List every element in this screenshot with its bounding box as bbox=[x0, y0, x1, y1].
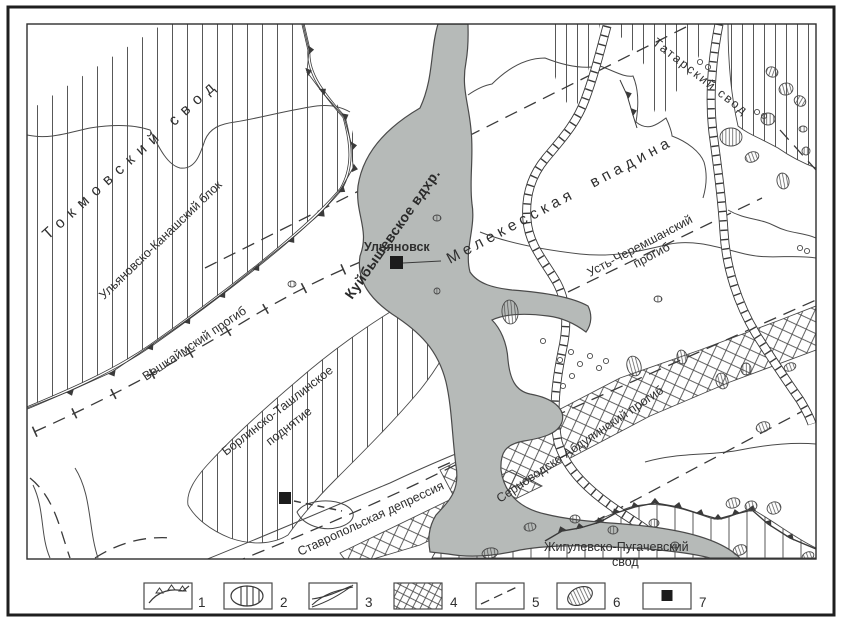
legend-number-3: 3 bbox=[365, 595, 373, 610]
label-ulyanovsk-city: Ульяновск bbox=[364, 240, 430, 254]
legend: 1 2 3 4 bbox=[144, 583, 707, 610]
legend-item-6: 6 bbox=[557, 583, 621, 610]
legend-number-6: 6 bbox=[613, 595, 621, 610]
legend-number-2: 2 bbox=[280, 595, 288, 610]
black-square-icon bbox=[662, 590, 673, 601]
legend-box-5 bbox=[476, 583, 524, 609]
legend-number-7: 7 bbox=[699, 595, 707, 610]
legend-number-4: 4 bbox=[450, 595, 458, 610]
crosshatch-icon bbox=[394, 583, 442, 609]
tectonic-map: Токмовский свод Ульяновско-Канашский бло… bbox=[0, 0, 841, 623]
legend-item-7: 7 bbox=[643, 583, 707, 610]
page: Токмовский свод Ульяновско-Канашский бло… bbox=[0, 0, 841, 623]
legend-item-4: 4 bbox=[394, 583, 458, 610]
legend-item-5: 5 bbox=[476, 583, 540, 610]
legend-item-3: 3 bbox=[309, 583, 373, 610]
ulyanovsk-city-marker bbox=[390, 256, 403, 269]
legend-box-1 bbox=[144, 583, 192, 609]
label-zhigulevsko-pugachevsky-2: свод bbox=[612, 555, 639, 569]
legend-item-2: 2 bbox=[224, 583, 288, 610]
legend-number-5: 5 bbox=[532, 595, 540, 610]
legend-number-1: 1 bbox=[198, 595, 206, 610]
legend-item-1: 1 bbox=[144, 583, 206, 610]
point-marker-borlinsko bbox=[279, 492, 291, 504]
label-zhigulevsko-pugachevsky-1: Жигулевско-Пугачевский bbox=[544, 540, 689, 554]
